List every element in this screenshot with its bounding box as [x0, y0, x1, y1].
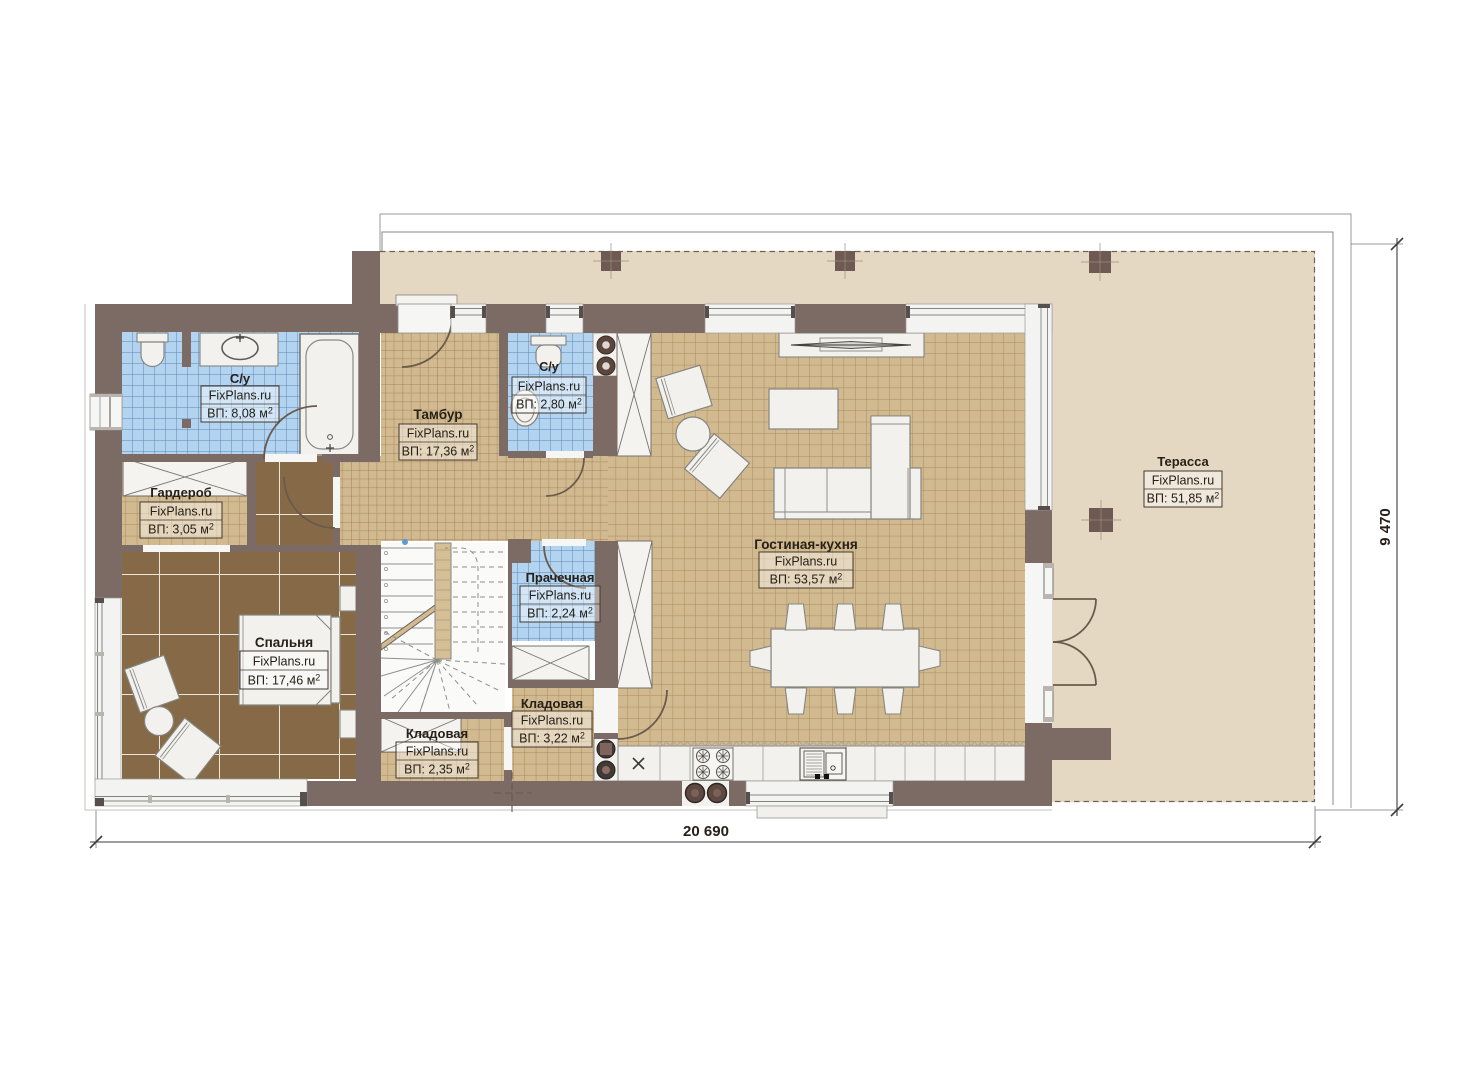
svg-text:Спальня: Спальня: [255, 635, 313, 650]
svg-text:ВП: 2,80 м2: ВП: 2,80 м2: [516, 397, 582, 412]
svg-text:Прачечная: Прачечная: [526, 570, 595, 585]
svg-text:FixPlans.ru: FixPlans.ru: [209, 389, 272, 403]
svg-text:ВП: 51,85 м2: ВП: 51,85 м2: [1147, 491, 1220, 506]
svg-text:FixPlans.ru: FixPlans.ru: [253, 655, 316, 669]
svg-text:FixPlans.ru: FixPlans.ru: [407, 427, 470, 441]
svg-text:С/у: С/у: [230, 371, 251, 386]
svg-text:FixPlans.ru: FixPlans.ru: [775, 555, 838, 569]
svg-text:ВП: 17,46 м2: ВП: 17,46 м2: [248, 673, 321, 688]
svg-text:ВП: 8,08 м2: ВП: 8,08 м2: [207, 406, 273, 421]
svg-text:ВП: 3,05 м2: ВП: 3,05 м2: [148, 522, 214, 537]
svg-text:Гостиная-кухня: Гостиная-кухня: [754, 537, 857, 552]
svg-text:С/у: С/у: [539, 360, 559, 374]
svg-text:9 470: 9 470: [1377, 508, 1394, 546]
svg-text:Гардероб: Гардероб: [150, 485, 211, 500]
svg-text:Кладовая: Кладовая: [406, 726, 468, 741]
svg-text:20 690: 20 690: [683, 823, 729, 840]
svg-text:Кладовая: Кладовая: [521, 696, 583, 711]
svg-text:ВП: 53,57 м2: ВП: 53,57 м2: [770, 572, 843, 587]
svg-text:FixPlans.ru: FixPlans.ru: [518, 380, 581, 394]
svg-text:FixPlans.ru: FixPlans.ru: [1152, 474, 1215, 488]
svg-text:ВП: 2,35 м2: ВП: 2,35 м2: [404, 762, 470, 777]
svg-text:ВП: 3,22 м2: ВП: 3,22 м2: [519, 731, 585, 746]
svg-text:ВП: 2,24 м2: ВП: 2,24 м2: [527, 606, 593, 621]
svg-text:ВП: 17,36 м2: ВП: 17,36 м2: [402, 444, 475, 459]
svg-text:FixPlans.ru: FixPlans.ru: [406, 745, 469, 759]
svg-text:Тамбур: Тамбур: [414, 407, 463, 422]
svg-text:FixPlans.ru: FixPlans.ru: [521, 714, 584, 728]
svg-text:Терасса: Терасса: [1157, 454, 1209, 469]
svg-text:FixPlans.ru: FixPlans.ru: [150, 505, 213, 519]
svg-text:FixPlans.ru: FixPlans.ru: [529, 589, 592, 603]
